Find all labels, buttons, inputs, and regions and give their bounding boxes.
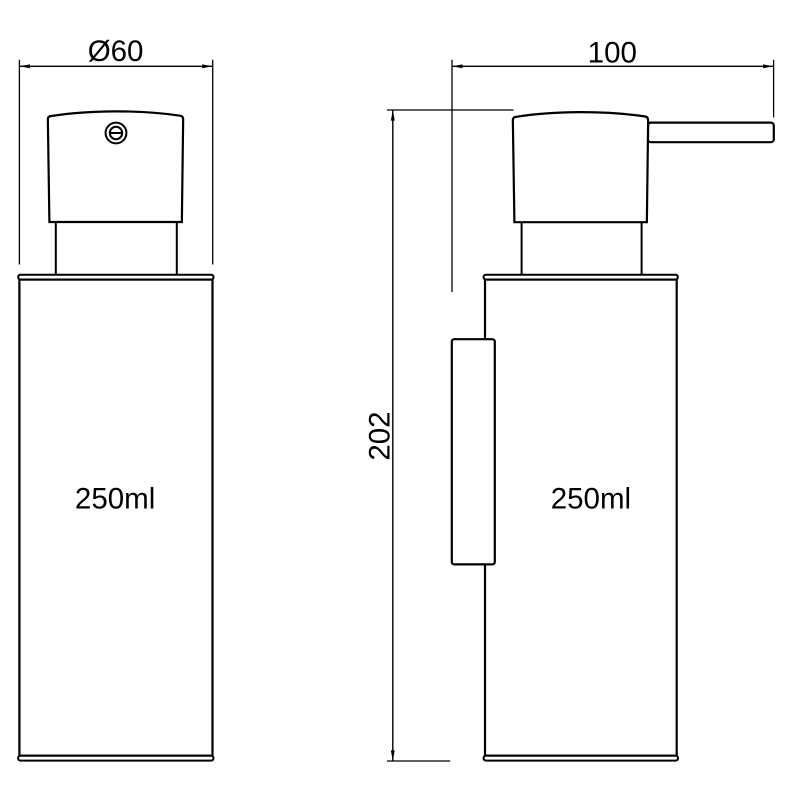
svg-text:250ml: 250ml: [75, 482, 155, 515]
svg-text:202: 202: [364, 411, 397, 460]
svg-text:Ø60: Ø60: [88, 35, 144, 68]
svg-text:250ml: 250ml: [551, 483, 631, 516]
svg-text:100: 100: [588, 37, 637, 70]
